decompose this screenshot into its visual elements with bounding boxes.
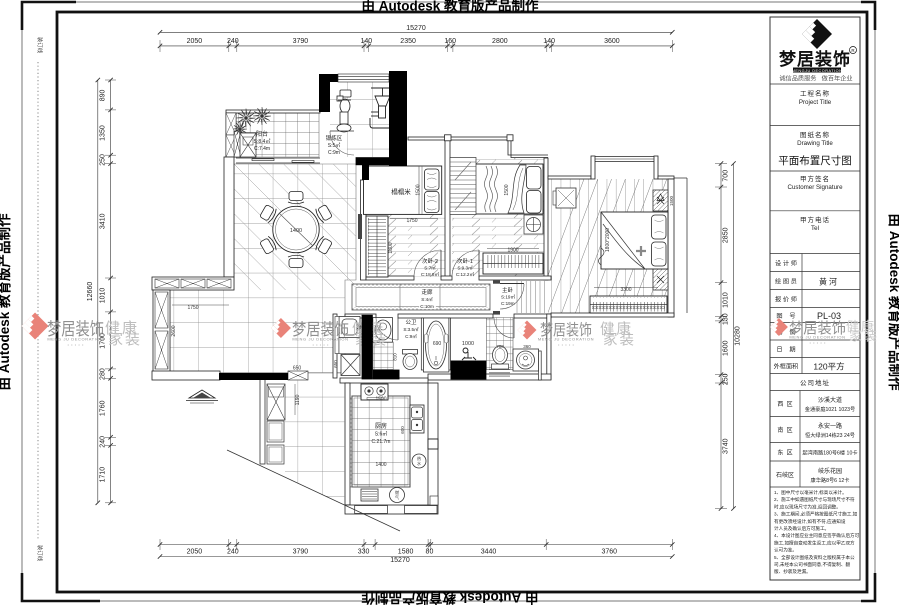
svg-text:气: 气 bbox=[395, 494, 399, 500]
svg-text:Project Title: Project Title bbox=[799, 99, 832, 106]
svg-text:• • • • •: • • • • • bbox=[810, 340, 826, 345]
svg-text:810: 810 bbox=[393, 353, 398, 361]
svg-text:C:9㎡: C:9㎡ bbox=[405, 333, 417, 339]
svg-text:1500: 1500 bbox=[669, 195, 674, 206]
svg-text:公卫: 公卫 bbox=[405, 319, 417, 326]
svg-text:280: 280 bbox=[100, 368, 107, 380]
svg-text:平面布置尺寸图: 平面布置尺寸图 bbox=[778, 154, 852, 167]
svg-text:3、施工期间,必须严格按图纸尺寸施工,如: 3、施工期间,必须严格按图纸尺寸施工,如 bbox=[774, 511, 858, 518]
svg-text:C:18.8㎡: C:18.8㎡ bbox=[421, 271, 440, 277]
svg-text:3790: 3790 bbox=[293, 549, 309, 556]
svg-text:图纸名称: 图纸名称 bbox=[800, 130, 830, 139]
svg-text:沙溪大道: 沙溪大道 bbox=[818, 396, 842, 404]
svg-text:2、施工中如遇图纸尺寸与现场尺寸不符: 2、施工中如遇图纸尺寸与现场尺寸不符 bbox=[774, 496, 855, 503]
svg-text:绘 图 员: 绘 图 员 bbox=[775, 278, 797, 286]
svg-text:2050: 2050 bbox=[187, 38, 203, 45]
svg-text:1750: 1750 bbox=[406, 218, 417, 224]
svg-text:起湾南路180号6楼 10卡: 起湾南路180号6楼 10卡 bbox=[802, 449, 857, 457]
svg-text:S:8.4㎡: S:8.4㎡ bbox=[254, 138, 271, 145]
svg-text:C:9m: C:9m bbox=[328, 150, 340, 156]
svg-text:家装: 家装 bbox=[603, 331, 636, 348]
svg-text:装订线: 装订线 bbox=[36, 545, 44, 562]
svg-text:1400: 1400 bbox=[375, 462, 386, 468]
svg-text:由 Autodesk 教育版产品制作: 由 Autodesk 教育版产品制作 bbox=[361, 0, 539, 14]
svg-text:1350: 1350 bbox=[100, 125, 107, 141]
svg-text:康华路8号6 12卡: 康华路8号6 12卡 bbox=[811, 476, 850, 484]
svg-text:C:12.2㎡: C:12.2㎡ bbox=[456, 271, 475, 277]
svg-text:1000: 1000 bbox=[462, 341, 474, 347]
svg-text:250: 250 bbox=[723, 373, 730, 385]
svg-text:水: 水 bbox=[417, 460, 421, 466]
svg-text:160: 160 bbox=[444, 38, 456, 45]
svg-text:工程名称: 工程名称 bbox=[800, 89, 830, 98]
svg-text:140: 140 bbox=[543, 38, 555, 45]
svg-text:MENG JU DECORATION: MENG JU DECORATION bbox=[538, 337, 594, 342]
svg-text:S:9.3㎡: S:9.3㎡ bbox=[457, 265, 473, 271]
svg-text:东 区: 东 区 bbox=[777, 449, 792, 457]
svg-text:南 区: 南 区 bbox=[777, 426, 792, 434]
svg-text:15270: 15270 bbox=[390, 557, 410, 564]
svg-text:1580: 1580 bbox=[398, 549, 414, 556]
svg-text:S:19㎡: S:19㎡ bbox=[501, 294, 515, 300]
svg-text:锻炼区: 锻炼区 bbox=[326, 134, 343, 142]
svg-text:1800: 1800 bbox=[388, 242, 394, 253]
svg-text:3410: 3410 bbox=[100, 213, 107, 229]
svg-text:240: 240 bbox=[227, 38, 239, 45]
svg-text:施工,如擅自变动发生返工,应以甲乙双方: 施工,如擅自变动发生返工,应以甲乙双方 bbox=[774, 539, 855, 546]
svg-text:S:6㎡: S:6㎡ bbox=[375, 431, 388, 438]
svg-text:3600: 3600 bbox=[604, 38, 620, 45]
svg-text:3740: 3740 bbox=[723, 438, 730, 454]
svg-text:3760: 3760 bbox=[601, 549, 617, 556]
svg-text:3440: 3440 bbox=[481, 549, 497, 556]
svg-text:240: 240 bbox=[100, 436, 107, 448]
svg-text:2350: 2350 bbox=[400, 38, 416, 45]
svg-text:金通豪庭1021 1023号: 金通豪庭1021 1023号 bbox=[805, 405, 855, 413]
svg-text:C:7.4m: C:7.4m bbox=[254, 146, 270, 152]
svg-text:890: 890 bbox=[100, 90, 107, 102]
svg-text:4、本设计图应业主同意应签字确认后方可: 4、本设计图应业主同意应签字确认后方可 bbox=[774, 532, 860, 539]
svg-text:甲方签名: 甲方签名 bbox=[800, 174, 830, 183]
svg-text:3790: 3790 bbox=[293, 38, 309, 45]
svg-text:80: 80 bbox=[426, 549, 434, 556]
svg-text:1750: 1750 bbox=[187, 305, 198, 311]
svg-text:1500: 1500 bbox=[416, 184, 422, 195]
svg-text:2800: 2800 bbox=[492, 38, 508, 45]
svg-text:12660: 12660 bbox=[87, 282, 94, 302]
svg-text:榻榻米: 榻榻米 bbox=[391, 187, 411, 196]
svg-text:外框面积: 外框面积 bbox=[774, 363, 799, 371]
svg-text:C:10m: C:10m bbox=[420, 304, 434, 309]
svg-text:装订线: 装订线 bbox=[36, 37, 44, 54]
svg-text:140: 140 bbox=[361, 38, 373, 45]
svg-text:1760: 1760 bbox=[100, 400, 107, 416]
svg-text:岐乐花园: 岐乐花园 bbox=[818, 467, 842, 475]
svg-text:C:21.7m: C:21.7m bbox=[372, 439, 391, 445]
svg-text:2050: 2050 bbox=[187, 549, 203, 556]
svg-text:S:3.5㎡: S:3.5㎡ bbox=[403, 326, 419, 332]
svg-text:360: 360 bbox=[523, 344, 531, 349]
svg-text:• • • • •: • • • • • bbox=[68, 342, 84, 347]
svg-text:石岐区: 石岐区 bbox=[776, 471, 794, 479]
svg-text:计人员及确认后方可施工。: 计人员及确认后方可施工。 bbox=[774, 525, 829, 532]
svg-text:司,未经本公司书面同意,不得复制、翻: 司,未经本公司书面同意,不得复制、翻 bbox=[774, 561, 850, 568]
svg-text:MENG JU DECORATION: MENG JU DECORATION bbox=[47, 337, 103, 342]
svg-text:Drawing Title: Drawing Title bbox=[797, 140, 833, 147]
svg-text:3300: 3300 bbox=[620, 287, 631, 293]
svg-text:10280: 10280 bbox=[735, 326, 742, 346]
svg-text:• • • • •: • • • • • bbox=[313, 342, 329, 347]
svg-text:• • • • •: • • • • • bbox=[558, 342, 574, 347]
svg-text:厨房: 厨房 bbox=[375, 422, 387, 430]
svg-text:MENG JU DECORATION: MENG JU DECORATION bbox=[292, 337, 348, 342]
svg-text:由 Autodesk 教育版产品制作: 由 Autodesk 教育版产品制作 bbox=[361, 590, 539, 605]
svg-text:1600: 1600 bbox=[723, 340, 730, 356]
svg-text:次卧-2: 次卧-2 bbox=[422, 257, 438, 265]
svg-text:1800*2000: 1800*2000 bbox=[605, 228, 611, 252]
svg-text:240: 240 bbox=[227, 549, 239, 556]
svg-text:2850: 2850 bbox=[723, 227, 730, 243]
svg-text:报 价 师: 报 价 师 bbox=[775, 296, 797, 304]
svg-text:梦居装饰: 梦居装饰 bbox=[779, 49, 851, 69]
svg-text:2600: 2600 bbox=[171, 325, 177, 336]
svg-text:版、抄袭及泄漏。: 版、抄袭及泄漏。 bbox=[774, 568, 811, 575]
svg-text:MENGJU DECORATION: MENGJU DECORATION bbox=[792, 69, 843, 73]
svg-text:恒大绿洲14栋23 24号: 恒大绿洲14栋23 24号 bbox=[805, 431, 855, 439]
svg-text:公司地址: 公司地址 bbox=[800, 378, 830, 387]
svg-text:5、全部设计图纸及资料之版权属于本公: 5、全部设计图纸及资料之版权属于本公 bbox=[774, 554, 855, 561]
svg-text:甲方电话: 甲方电话 bbox=[800, 215, 830, 224]
svg-text:家装: 家装 bbox=[849, 328, 879, 343]
svg-text:15270: 15270 bbox=[406, 25, 426, 32]
svg-text:700: 700 bbox=[723, 170, 730, 182]
svg-text:日 期: 日 期 bbox=[776, 346, 795, 354]
svg-text:130: 130 bbox=[723, 313, 730, 325]
svg-text:1、图中尺寸以毫米计,标高以米计。: 1、图中尺寸以毫米计,标高以米计。 bbox=[774, 489, 847, 496]
svg-text:Customer Signature: Customer Signature bbox=[787, 184, 843, 191]
svg-text:1010: 1010 bbox=[100, 288, 107, 304]
svg-text:250: 250 bbox=[100, 154, 107, 166]
svg-text:120平方: 120平方 bbox=[813, 362, 844, 372]
svg-text:诚信品质服务 做百年企业: 诚信品质服务 做百年企业 bbox=[779, 75, 852, 83]
svg-text:1500: 1500 bbox=[375, 397, 386, 403]
svg-text:时,应以现场尺寸为准,返回调整。: 时,应以现场尺寸为准,返回调整。 bbox=[774, 503, 841, 510]
svg-text:永安一路: 永安一路 bbox=[818, 422, 842, 430]
svg-text:MENG JU DECORATION: MENG JU DECORATION bbox=[789, 335, 845, 340]
svg-text:650: 650 bbox=[293, 366, 302, 372]
svg-text:330: 330 bbox=[358, 549, 370, 556]
svg-text:黄河: 黄河 bbox=[819, 277, 839, 287]
svg-text:700: 700 bbox=[496, 344, 504, 349]
svg-text:由 Autodesk 教育版产品制作: 由 Autodesk 教育版产品制作 bbox=[887, 213, 899, 391]
svg-text:1710: 1710 bbox=[100, 467, 107, 483]
svg-text:600: 600 bbox=[400, 426, 405, 434]
svg-text:1400: 1400 bbox=[290, 228, 302, 234]
svg-text:1010: 1010 bbox=[723, 292, 730, 308]
svg-text:1190: 1190 bbox=[295, 394, 301, 405]
svg-text:阳台: 阳台 bbox=[256, 130, 268, 138]
svg-text:S:4㎡: S:4㎡ bbox=[421, 296, 433, 302]
svg-text:走廊: 走廊 bbox=[421, 288, 433, 296]
svg-text:690: 690 bbox=[433, 341, 442, 347]
svg-text:Tel: Tel bbox=[811, 225, 819, 232]
svg-text:有更改须经设计,如有不符,应通知设: 有更改须经设计,如有不符,应通知设 bbox=[774, 518, 846, 525]
svg-text:认可为准。: 认可为准。 bbox=[774, 547, 797, 554]
svg-text:1500: 1500 bbox=[504, 184, 510, 195]
svg-text:S:5㎡: S:5㎡ bbox=[328, 142, 341, 149]
svg-text:设 计 师: 设 计 师 bbox=[775, 260, 797, 268]
svg-text:主卧: 主卧 bbox=[502, 286, 514, 294]
svg-text:S:7㎡: S:7㎡ bbox=[424, 265, 436, 271]
svg-text:650: 650 bbox=[333, 360, 338, 368]
svg-text:家装: 家装 bbox=[108, 331, 142, 348]
svg-text:由 Autodesk 教育版产品制作: 由 Autodesk 教育版产品制作 bbox=[0, 213, 12, 391]
svg-text:西 区: 西 区 bbox=[777, 401, 792, 408]
